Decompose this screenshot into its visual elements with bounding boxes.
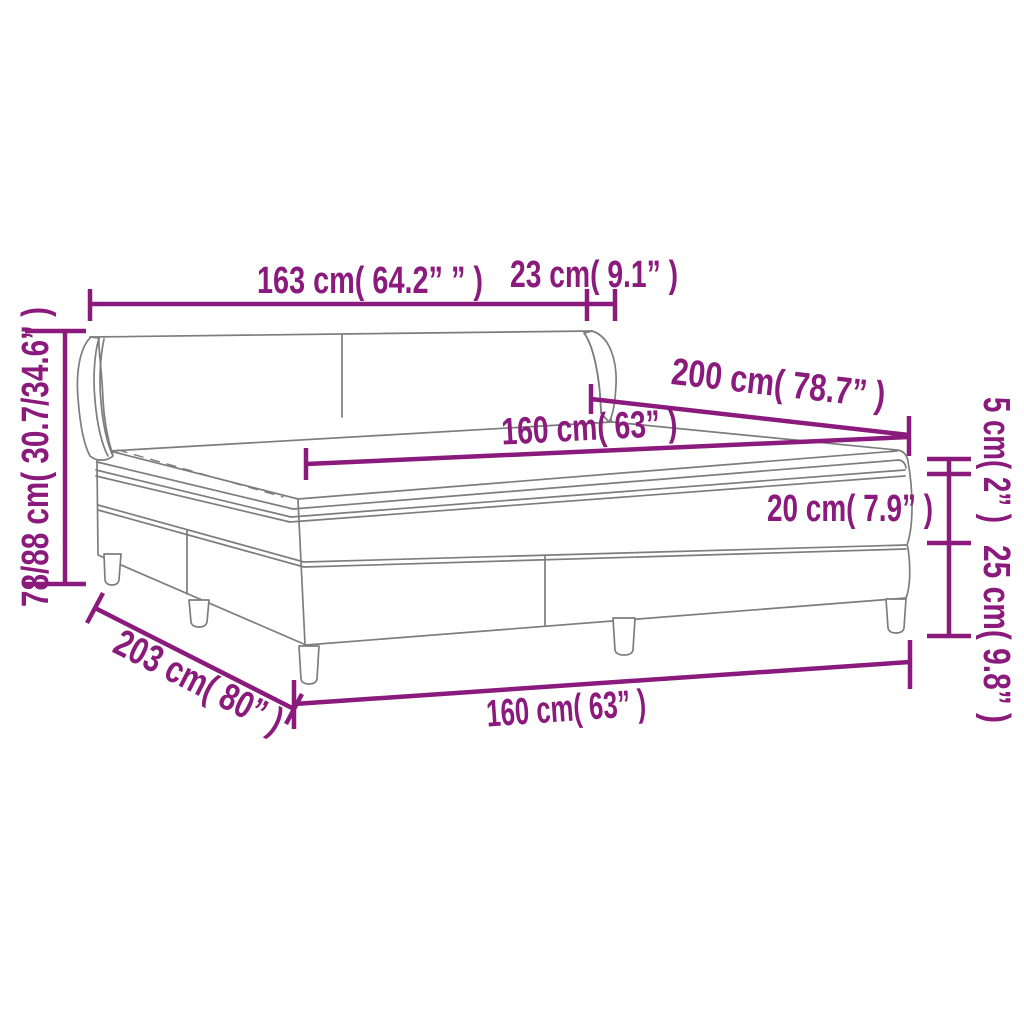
bed-leg [104, 554, 121, 585]
label-headboard-width: 163 cm( 64.2” ” ) [257, 260, 483, 302]
diagram-svg: 163 cm( 64.2” ” ) 23 cm( 9.1” ) 78/88 cm… [0, 0, 1024, 1024]
label-wing-depth: 23 cm( 9.1” ) [510, 254, 678, 296]
label-frame-length: 203 cm( 80” ) [107, 622, 290, 743]
label-headboard-height: 78/88 cm( 30.7/34.6” ) [15, 307, 57, 607]
bed-leg [189, 600, 209, 627]
label-topper-thickness: 5 cm( 2” ) [975, 397, 1017, 523]
dimension-thickness-stack [927, 459, 971, 636]
bed-leg [613, 618, 635, 655]
label-bed-length: 200 cm( 78.7” ) [669, 351, 887, 417]
bed-leg [886, 599, 906, 633]
label-base-height: 25 cm( 9.8” ) [975, 545, 1017, 723]
bed-leg [299, 646, 319, 684]
bed-dimension-diagram: 163 cm( 64.2” ” ) 23 cm( 9.1” ) 78/88 cm… [0, 0, 1024, 1024]
label-mattress-thickness: 20 cm( 7.9” ) [767, 488, 933, 530]
